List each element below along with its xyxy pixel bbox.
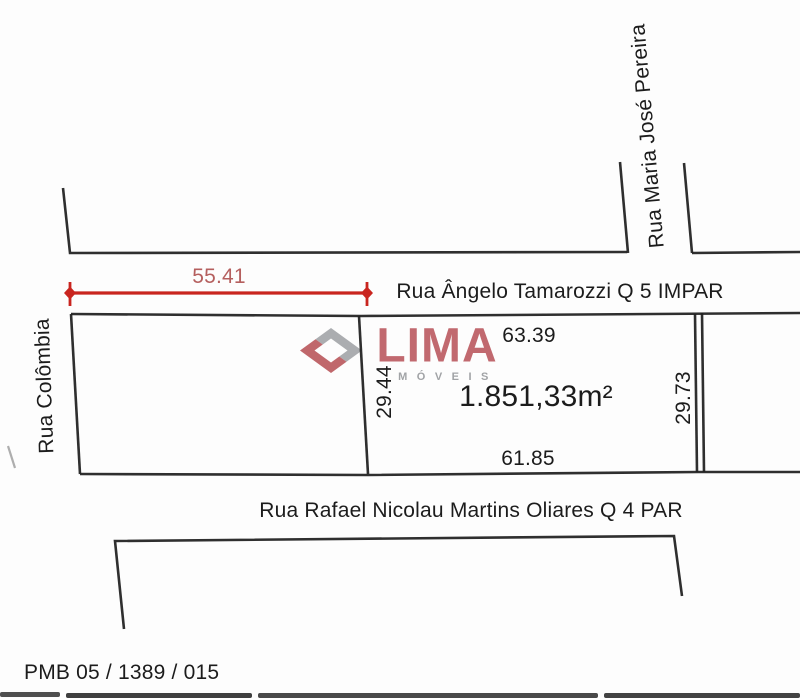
lots-top-edge [71, 313, 800, 316]
street-label-bottom: Rua Rafael Nicolau Martins Oliares Q 4 P… [259, 499, 683, 523]
watermark-tagline-text: MÓVEIS [398, 371, 498, 383]
scan-smudge-mark [8, 446, 15, 468]
dimension-marker-left [64, 287, 76, 300]
street-top-right-line [692, 252, 800, 253]
dimension-value: 55.41 [192, 265, 246, 289]
bottom-street-outline [115, 536, 682, 629]
upper-right-street-left-line [620, 162, 628, 253]
scan-artifact-segment [0, 692, 60, 697]
street-label-left: Rua Colômbia [31, 318, 60, 454]
scan-artifact-segment [604, 693, 800, 698]
street-label-top: Rua Ângelo Tamarozzi Q 5 IMPAR [396, 280, 723, 304]
survey-plot-page: Rua Ângelo Tamarozzi Q 5 IMPAR Rua Maria… [0, 0, 800, 698]
lot-back-measure: 61.85 [501, 447, 555, 471]
watermark-brand-text: LIMA [376, 319, 497, 374]
lot-divider-left [359, 316, 368, 474]
upper-right-street-right-line [684, 163, 692, 253]
lima-logo-diamond [300, 328, 362, 373]
scan-artifact-segment [258, 693, 598, 698]
lots-bottom-edge [80, 472, 800, 475]
dimension-marker-right [361, 287, 373, 300]
left-lot-left-edge [71, 314, 80, 474]
lot-divider-right-inner [702, 313, 704, 472]
scan-artifact-segment [66, 693, 252, 698]
lot-right-measure: 29.73 [672, 371, 696, 425]
lot-area-value: 1.851,33m² [459, 380, 613, 414]
plot-reference-code: PMB 05 / 1389 / 015 [24, 661, 219, 685]
street-corner-top-left-line [63, 188, 627, 253]
lot-front-measure: 63.39 [502, 324, 556, 348]
